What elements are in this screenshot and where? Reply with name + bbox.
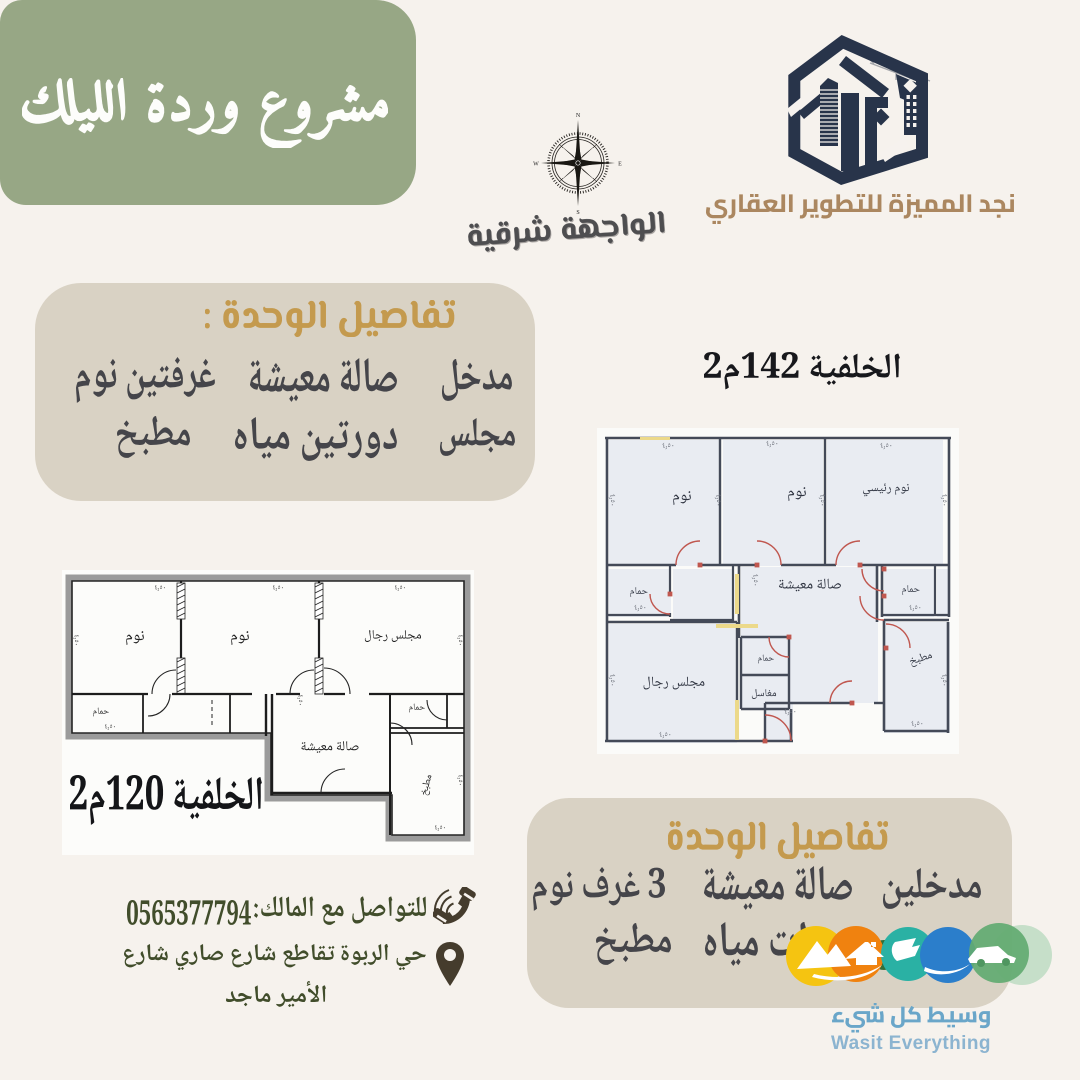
- svg-text:W: W: [533, 162, 539, 168]
- svg-text:N: N: [576, 113, 581, 119]
- svg-text:E: E: [618, 162, 622, 168]
